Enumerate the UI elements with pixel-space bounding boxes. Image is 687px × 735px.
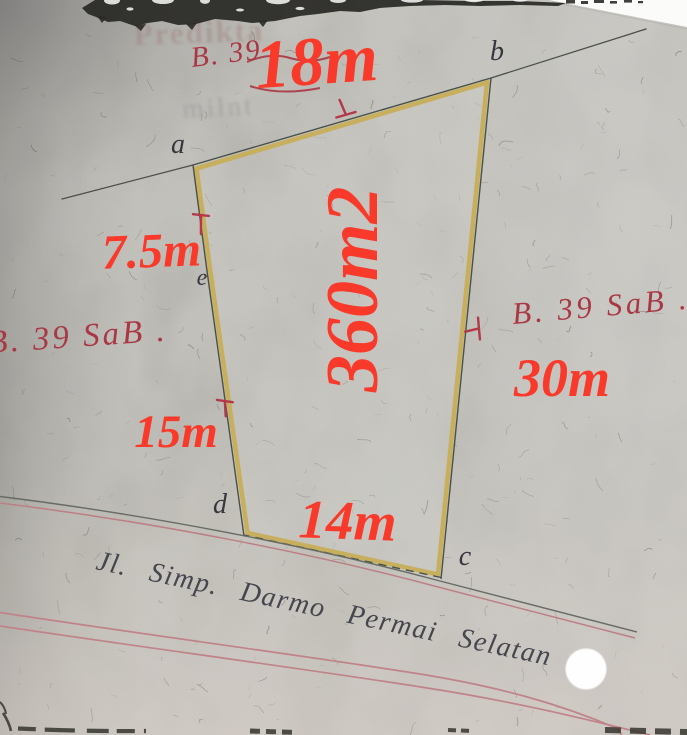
svg-text:c: c — [459, 541, 472, 572]
svg-text:b: b — [490, 36, 504, 67]
svg-text:d: d — [213, 489, 228, 520]
svg-text:7.5m: 7.5m — [101, 221, 202, 279]
svg-text:360m2: 360m2 — [312, 186, 394, 393]
svg-text:milnt: milnt — [182, 90, 255, 124]
svg-text:a: a — [171, 129, 185, 160]
svg-text:18m: 18m — [253, 19, 381, 103]
svg-text:30m: 30m — [513, 348, 610, 408]
svg-text:14m: 14m — [298, 488, 398, 552]
svg-text:15m: 15m — [134, 406, 218, 458]
